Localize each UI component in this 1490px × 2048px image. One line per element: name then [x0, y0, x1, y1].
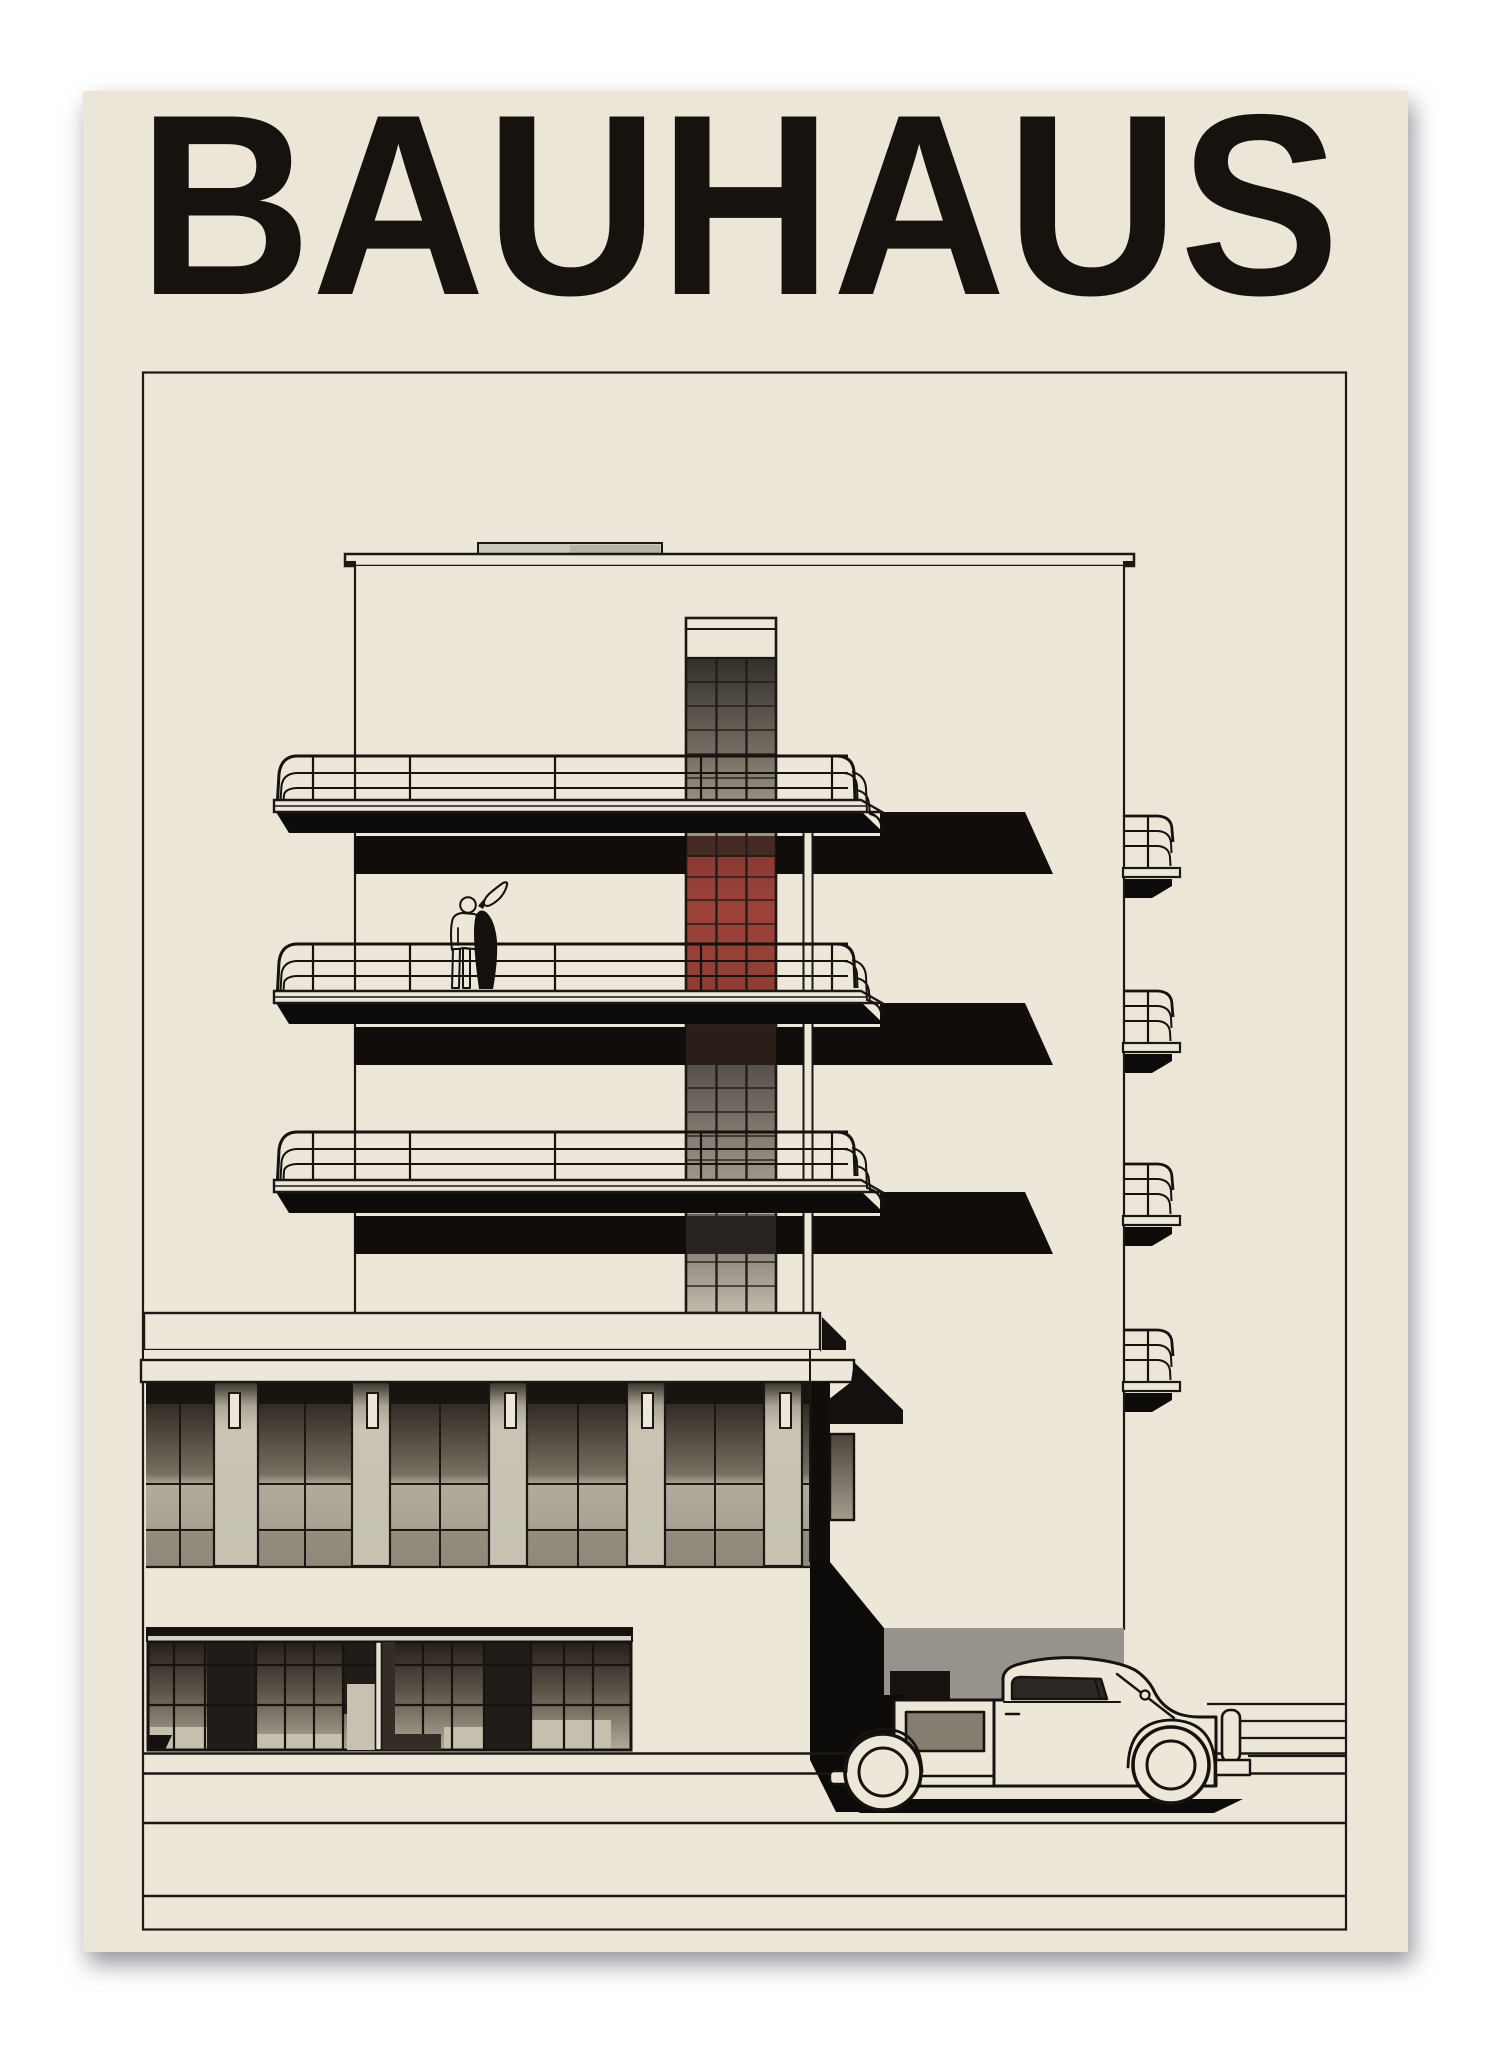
- svg-text:BAUHAUS: BAUHAUS: [138, 60, 1340, 349]
